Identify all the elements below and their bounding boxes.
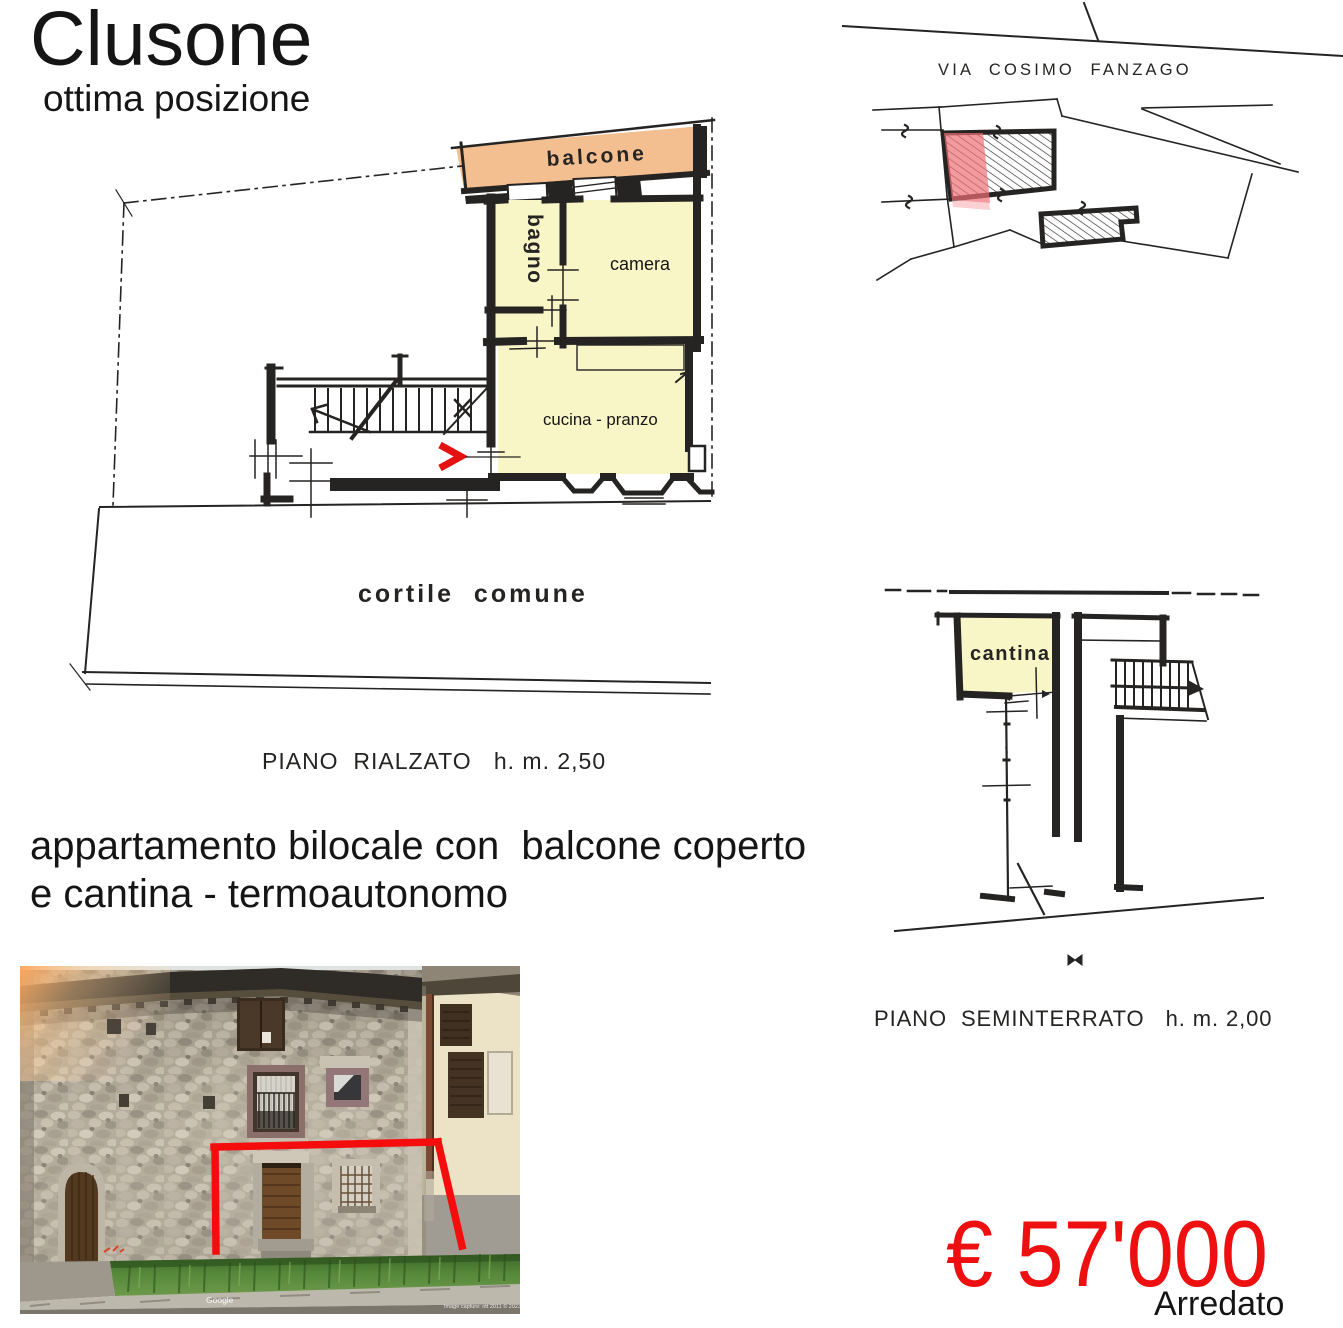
svg-text:appartamento bilocale con bal: appartamento bilocale con balcone copert…: [30, 824, 806, 868]
svg-text:Image capture: ott 2011 © 202: Image capture: ott 2011 © 2023 Google: [444, 1303, 540, 1310]
svg-text:PIANO SEMINTERRATO h. m. 2,: PIANO SEMINTERRATO h. m. 2,00: [874, 1006, 1272, 1031]
svg-text:Arredato: Arredato: [1154, 1285, 1284, 1323]
svg-text:PIANO RIALZATO h. m. 2,50: PIANO RIALZATO h. m. 2,50: [262, 748, 606, 774]
svg-text:cantina: cantina: [970, 643, 1051, 665]
svg-text:ottima posizione: ottima posizione: [43, 78, 310, 119]
svg-text:Clusone: Clusone: [30, 0, 313, 82]
svg-text:cortile comune: cortile comune: [358, 580, 588, 608]
svg-text:cucina - pranzo: cucina - pranzo: [543, 410, 658, 429]
svg-text:VIA COSIMO FANZAGO: VIA COSIMO FANZAGO: [938, 61, 1192, 79]
svg-text:Google: Google: [206, 1295, 234, 1305]
svg-text:camera: camera: [610, 254, 671, 274]
svg-text:e cantina - termoautonomo: e cantina - termoautonomo: [30, 872, 508, 916]
svg-text:bagno: bagno: [523, 214, 546, 285]
